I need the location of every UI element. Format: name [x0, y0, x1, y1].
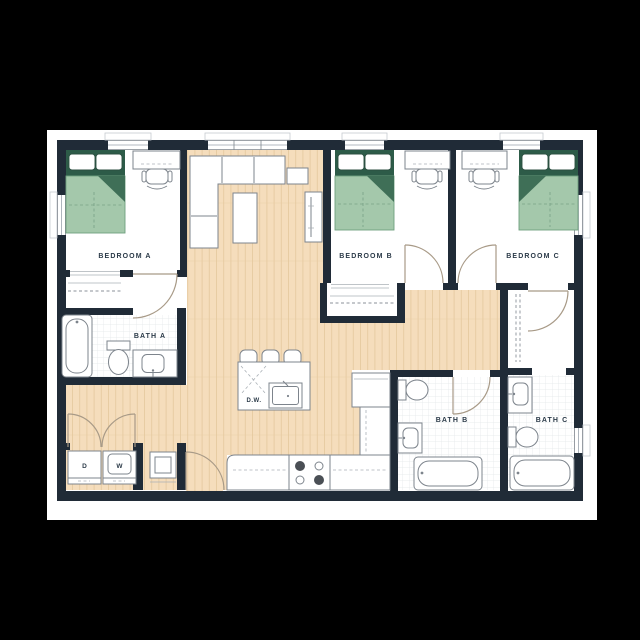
desk-b — [405, 151, 450, 169]
bed-c — [519, 150, 578, 230]
toilet-b — [398, 380, 428, 400]
tv-console — [305, 192, 322, 242]
window-bedroom-a-top — [105, 133, 151, 150]
window-bedroom-b-top — [342, 133, 387, 150]
desk-c — [462, 151, 507, 169]
washer: W — [103, 451, 136, 484]
dryer-label: D — [82, 463, 87, 470]
bath-b-label: BATH B — [436, 417, 469, 424]
island: D.W. — [238, 350, 310, 410]
counter-right — [360, 407, 390, 455]
coffee-table — [233, 193, 257, 243]
toilet-c — [508, 427, 538, 447]
bathtub-c — [510, 456, 574, 490]
bathtub-a — [62, 315, 92, 377]
dryer: D — [68, 451, 101, 484]
vanity-a — [133, 350, 177, 377]
floorplan: D.W. D W — [0, 0, 640, 640]
bath-c-label: BATH C — [536, 417, 569, 424]
bedroom-c-label: BEDROOM C — [506, 253, 559, 260]
window-living-top — [205, 133, 290, 150]
bedroom-a-label: BEDROOM A — [98, 253, 151, 260]
bed-a — [66, 150, 125, 233]
bedroom-b-label: BEDROOM B — [339, 253, 392, 260]
window-bath-c-right — [574, 425, 590, 456]
desk-a — [133, 151, 180, 169]
water-heater — [150, 452, 176, 482]
toilet-a — [107, 341, 130, 375]
island-sink — [269, 381, 302, 408]
side-table — [287, 168, 308, 184]
bath-a-label: BATH A — [134, 333, 166, 340]
dishwasher-label: D.W. — [247, 398, 262, 404]
vanity-b — [398, 423, 422, 453]
refrigerator — [352, 373, 390, 407]
window-bedroom-c-top — [500, 133, 543, 150]
window-bedroom-a-left — [50, 192, 66, 238]
stove — [289, 455, 330, 490]
bed-b — [335, 150, 394, 230]
bathtub-b — [414, 457, 482, 490]
vanity-c — [508, 377, 532, 413]
washer-label: W — [116, 463, 123, 470]
